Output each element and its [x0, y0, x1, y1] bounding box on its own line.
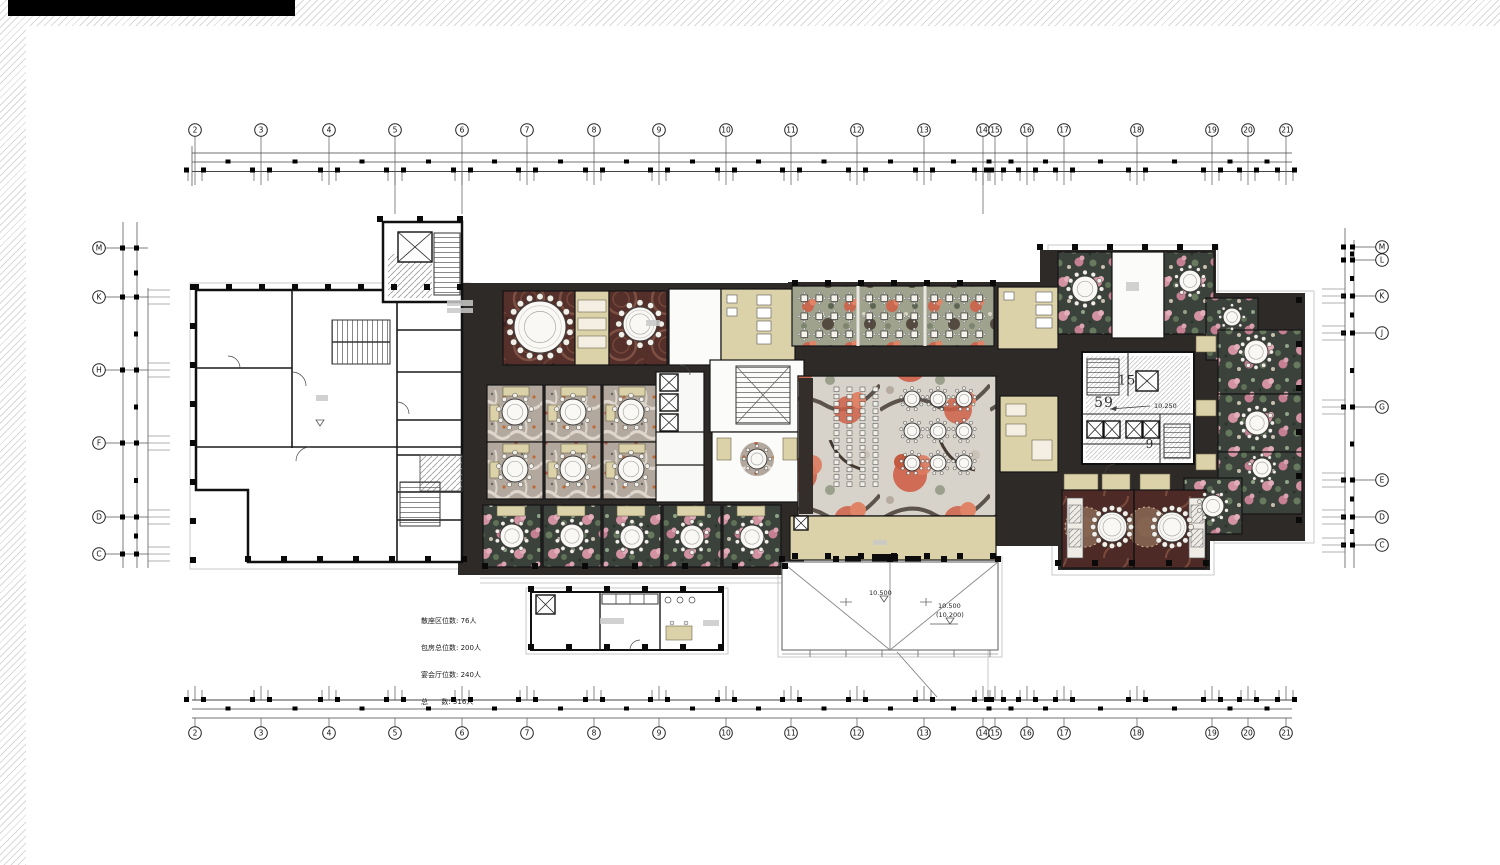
column	[957, 553, 963, 559]
chair	[818, 292, 820, 294]
chair	[943, 453, 946, 456]
chair	[918, 315, 920, 317]
dim-block	[1070, 168, 1075, 173]
column	[779, 556, 785, 562]
banquet-seat	[847, 467, 852, 472]
chair	[903, 315, 905, 317]
chair	[1248, 470, 1252, 474]
banquet-seat	[834, 460, 839, 465]
dim-block	[989, 168, 994, 173]
chair	[1198, 508, 1202, 512]
dim-block	[1341, 245, 1346, 250]
chair	[1196, 268, 1200, 272]
column	[1055, 560, 1061, 566]
chair	[913, 320, 915, 322]
chair	[759, 522, 763, 526]
column	[259, 284, 265, 290]
chair	[655, 310, 661, 316]
banquet-seat	[834, 424, 839, 429]
chair	[940, 408, 943, 411]
dim-block	[756, 160, 761, 164]
chair	[619, 310, 625, 316]
column	[825, 553, 831, 559]
chair	[1099, 287, 1104, 292]
grid-bubble-label: 4	[327, 126, 332, 135]
dim-block	[134, 552, 139, 557]
chair	[1202, 283, 1206, 287]
chair	[619, 332, 625, 338]
chair	[1152, 532, 1157, 537]
chair	[883, 302, 885, 304]
chair	[750, 519, 754, 523]
chair	[963, 310, 965, 312]
column	[1129, 560, 1135, 566]
dim-block	[987, 707, 992, 711]
dim-block	[1143, 697, 1148, 702]
dim-block	[624, 707, 629, 711]
dim-block	[516, 697, 521, 702]
column	[190, 518, 196, 524]
banquet-seat	[847, 453, 852, 458]
dim-block	[797, 697, 802, 702]
grid-bubble-label: 10	[721, 126, 731, 135]
chair	[913, 302, 915, 304]
dim-block	[1350, 294, 1355, 299]
chair	[959, 440, 962, 443]
chair	[1241, 342, 1245, 346]
chair	[813, 297, 815, 299]
chair	[1162, 507, 1167, 512]
chair	[888, 315, 890, 317]
dim-block	[533, 168, 538, 173]
elevator-shaft	[1104, 421, 1120, 438]
dim-block	[1172, 707, 1177, 711]
grid-bubble-label: 20	[1243, 729, 1253, 738]
chair	[873, 297, 875, 299]
table-top	[961, 331, 968, 338]
chair	[523, 454, 528, 459]
chair	[637, 342, 643, 348]
table-top	[911, 313, 918, 320]
chair	[1203, 493, 1207, 497]
chair	[838, 333, 840, 335]
table-top	[801, 295, 808, 302]
chair	[556, 418, 561, 423]
table-top	[881, 295, 888, 302]
dim-block	[184, 168, 189, 173]
dim-block	[1350, 478, 1355, 483]
chair	[938, 297, 940, 299]
banquet-seat	[873, 445, 878, 450]
grid-bubble-label: 11	[786, 729, 796, 738]
grid-bubble-label: 19	[1207, 729, 1217, 738]
chair	[626, 303, 632, 309]
chair	[868, 338, 870, 340]
dim-block	[533, 697, 538, 702]
chair	[878, 315, 880, 317]
chair	[1267, 358, 1271, 362]
dim-block	[1350, 368, 1354, 373]
column	[528, 586, 534, 592]
banquet-seat	[860, 460, 865, 465]
dim-block	[665, 697, 670, 702]
dim-block	[516, 168, 521, 173]
column	[642, 644, 648, 650]
chair	[910, 451, 913, 454]
chair	[838, 315, 840, 317]
dim-block	[1350, 276, 1354, 281]
chair	[868, 292, 870, 294]
chair	[1066, 287, 1071, 292]
chair	[496, 407, 501, 412]
chair	[963, 328, 965, 330]
chair	[1156, 538, 1161, 543]
core-label-9: 9	[1146, 437, 1155, 451]
chair	[1268, 477, 1272, 481]
dim-block	[1172, 160, 1177, 164]
table-top	[904, 423, 920, 439]
column	[924, 280, 930, 286]
banquet-seat	[860, 387, 865, 392]
chair	[946, 467, 949, 470]
chair	[507, 329, 513, 335]
banquet-seat	[860, 453, 865, 458]
dim-block	[665, 168, 670, 173]
dim-block	[134, 441, 139, 446]
grid-bubble-label: 9	[657, 126, 662, 135]
column	[957, 280, 963, 286]
core-label-15: 15	[1118, 374, 1137, 389]
table-top	[930, 455, 946, 471]
chair	[645, 464, 650, 469]
chair	[963, 320, 965, 322]
column	[941, 556, 947, 562]
elevation-label: 10.500	[869, 589, 892, 597]
dim-block	[972, 168, 977, 173]
table-top	[866, 331, 873, 338]
table-top	[831, 331, 838, 338]
chair	[704, 530, 708, 534]
dim-block	[822, 707, 827, 711]
dim-block	[120, 552, 125, 557]
chair	[833, 320, 835, 322]
chair	[883, 320, 885, 322]
column	[1296, 341, 1302, 347]
chair	[524, 539, 528, 543]
chair	[571, 450, 576, 455]
grid-bubble-label: 17	[1059, 729, 1069, 738]
chair	[1083, 270, 1088, 275]
column	[718, 644, 724, 650]
chair	[612, 407, 617, 412]
grid-bubble-label: 3	[259, 126, 264, 135]
dim-block	[972, 697, 977, 702]
dim-block	[1126, 697, 1131, 702]
table-top	[831, 295, 838, 302]
table-top	[831, 313, 838, 320]
chair	[947, 396, 950, 399]
grid-bubble-label: 18	[1132, 729, 1142, 738]
chair	[913, 310, 915, 312]
elevator-shaft	[794, 516, 808, 530]
grid-bubble-label: G	[1379, 403, 1385, 412]
chair	[630, 519, 634, 523]
chair	[808, 333, 810, 335]
chair	[1074, 301, 1079, 306]
chair	[933, 472, 936, 475]
chair	[953, 435, 956, 438]
chair	[1255, 405, 1259, 409]
table-top	[618, 456, 644, 482]
chair	[936, 387, 939, 390]
chair	[1175, 283, 1179, 287]
banquet-seat	[834, 445, 839, 450]
table-top	[514, 301, 566, 353]
chair	[963, 292, 965, 294]
chair	[510, 339, 516, 345]
grid-bubble-label: 6	[460, 126, 465, 135]
dim-block	[250, 697, 255, 702]
banquet-seat	[834, 387, 839, 392]
dim-block	[335, 168, 340, 173]
chair	[828, 333, 830, 335]
column	[891, 280, 897, 286]
chair	[1203, 515, 1207, 519]
chair	[563, 339, 569, 345]
table-top	[816, 313, 823, 320]
chair	[554, 464, 559, 469]
chair	[848, 292, 850, 294]
chair	[570, 518, 574, 522]
chair	[943, 389, 946, 392]
banquet-seat	[873, 482, 878, 487]
chair	[900, 396, 903, 399]
chair	[675, 530, 679, 534]
grid-bubble-label: 20	[1243, 126, 1253, 135]
chair	[1092, 517, 1097, 522]
chair	[517, 301, 523, 307]
chair	[933, 302, 935, 304]
column	[858, 553, 864, 559]
chair	[917, 421, 920, 424]
chair	[898, 320, 900, 322]
banquet-seat	[860, 424, 865, 429]
chair	[893, 297, 895, 299]
chair	[495, 529, 499, 533]
chair	[518, 482, 523, 487]
chair	[921, 396, 924, 399]
chair	[962, 419, 965, 422]
chair	[1188, 293, 1192, 297]
chair	[972, 435, 975, 438]
chair	[579, 546, 583, 550]
chair	[873, 333, 875, 335]
grid-bubble-label: 19	[1207, 126, 1217, 135]
chair	[917, 453, 920, 456]
chair	[1270, 421, 1274, 425]
grid-bubble-label: 21	[1281, 126, 1291, 135]
chair	[764, 466, 768, 470]
dim-block	[384, 697, 389, 702]
chair	[913, 292, 915, 294]
grid-band-left: MKHFDC	[93, 222, 170, 568]
chair	[910, 387, 913, 390]
chair	[953, 467, 956, 470]
table-top	[846, 313, 853, 320]
banquet-seat	[873, 438, 878, 443]
dim-block	[134, 295, 139, 300]
chair	[1123, 538, 1128, 543]
grid-bubble-label: 2	[193, 126, 198, 135]
table-top	[930, 423, 946, 439]
column	[190, 557, 196, 563]
chair	[900, 460, 903, 463]
dim-block	[1143, 168, 1148, 173]
chair	[1117, 507, 1122, 512]
table-top	[956, 391, 972, 407]
chair	[1273, 470, 1277, 474]
table-top	[747, 449, 767, 469]
banquet-seat	[847, 394, 852, 399]
chair	[929, 421, 932, 424]
chair	[929, 389, 932, 392]
chair	[1091, 301, 1096, 306]
table-top	[740, 525, 764, 549]
dim-block	[1218, 168, 1223, 173]
chair	[764, 530, 768, 534]
chair	[1230, 304, 1233, 307]
chair	[648, 339, 654, 345]
column	[582, 563, 588, 569]
chair	[1255, 436, 1259, 440]
column	[1296, 385, 1302, 391]
elevator-shaft	[660, 414, 678, 431]
chair	[969, 421, 972, 424]
chair	[1127, 532, 1132, 537]
chair	[948, 338, 950, 340]
chair	[883, 292, 885, 294]
chair	[972, 467, 975, 470]
table-top	[801, 331, 808, 338]
chair	[928, 333, 930, 335]
empty-room	[1112, 252, 1164, 338]
column	[1177, 244, 1183, 250]
grid-band-right: MLKJGEDC	[1322, 228, 1388, 568]
chair	[929, 453, 932, 456]
banquet-seat	[860, 402, 865, 407]
column	[190, 401, 196, 407]
chair	[966, 440, 969, 443]
column	[190, 440, 196, 446]
dim-block	[226, 160, 231, 164]
chair	[561, 521, 565, 525]
chair	[933, 328, 935, 330]
chair	[518, 425, 523, 430]
chair	[618, 397, 623, 402]
banquet-seat	[873, 475, 878, 480]
chair	[510, 309, 516, 315]
chair	[946, 403, 949, 406]
dim-block	[1201, 168, 1206, 173]
table-top	[1179, 270, 1201, 292]
chair	[1254, 334, 1258, 338]
chair	[501, 521, 505, 525]
column	[1072, 244, 1078, 250]
dim-block	[1350, 258, 1355, 263]
chair	[948, 292, 950, 294]
elevator-shaft	[1087, 421, 1103, 438]
table-top	[976, 295, 983, 302]
chair	[510, 518, 514, 522]
chair	[1219, 315, 1222, 318]
chair	[746, 466, 750, 470]
chair	[1097, 278, 1102, 283]
banquet-seat	[847, 424, 852, 429]
chair	[563, 309, 569, 315]
table-top	[946, 331, 953, 338]
chair	[513, 450, 518, 455]
chair	[898, 302, 900, 304]
column	[245, 556, 251, 562]
chair	[1253, 456, 1257, 460]
chair	[1092, 532, 1097, 537]
chair	[1109, 543, 1114, 548]
chair	[848, 338, 850, 340]
chair	[1202, 275, 1206, 279]
chair	[953, 315, 955, 317]
chair	[1188, 265, 1192, 269]
chair	[587, 407, 592, 412]
chair	[1242, 413, 1246, 417]
column	[1166, 560, 1172, 566]
chair	[639, 454, 644, 459]
chair	[958, 315, 960, 317]
chair	[634, 425, 639, 430]
chair	[764, 448, 768, 452]
column	[718, 586, 724, 592]
chair	[587, 464, 592, 469]
column	[391, 284, 397, 290]
chair	[907, 440, 910, 443]
dim-block	[1265, 160, 1270, 164]
dim-block	[134, 534, 138, 539]
dim-block	[583, 697, 588, 702]
table-top	[946, 313, 953, 320]
chair	[576, 425, 581, 430]
chair	[1254, 365, 1258, 369]
grid-bubble-label: 7	[525, 126, 530, 135]
dim-block	[426, 160, 431, 164]
table-top	[931, 331, 938, 338]
grid-bubble-label: 2	[193, 729, 198, 738]
chair	[933, 408, 936, 411]
chair	[863, 297, 865, 299]
stair	[1087, 359, 1119, 395]
table-top	[1252, 458, 1272, 478]
chair	[621, 547, 625, 551]
chair	[818, 328, 820, 330]
chair	[623, 425, 628, 430]
banquet-seat	[834, 402, 839, 407]
chair	[1263, 408, 1267, 412]
chair	[868, 310, 870, 312]
chair	[798, 333, 800, 335]
column	[1142, 244, 1148, 250]
chair	[615, 540, 619, 544]
chair	[1091, 272, 1096, 277]
dim-block	[1275, 697, 1280, 702]
chair	[1268, 456, 1272, 460]
